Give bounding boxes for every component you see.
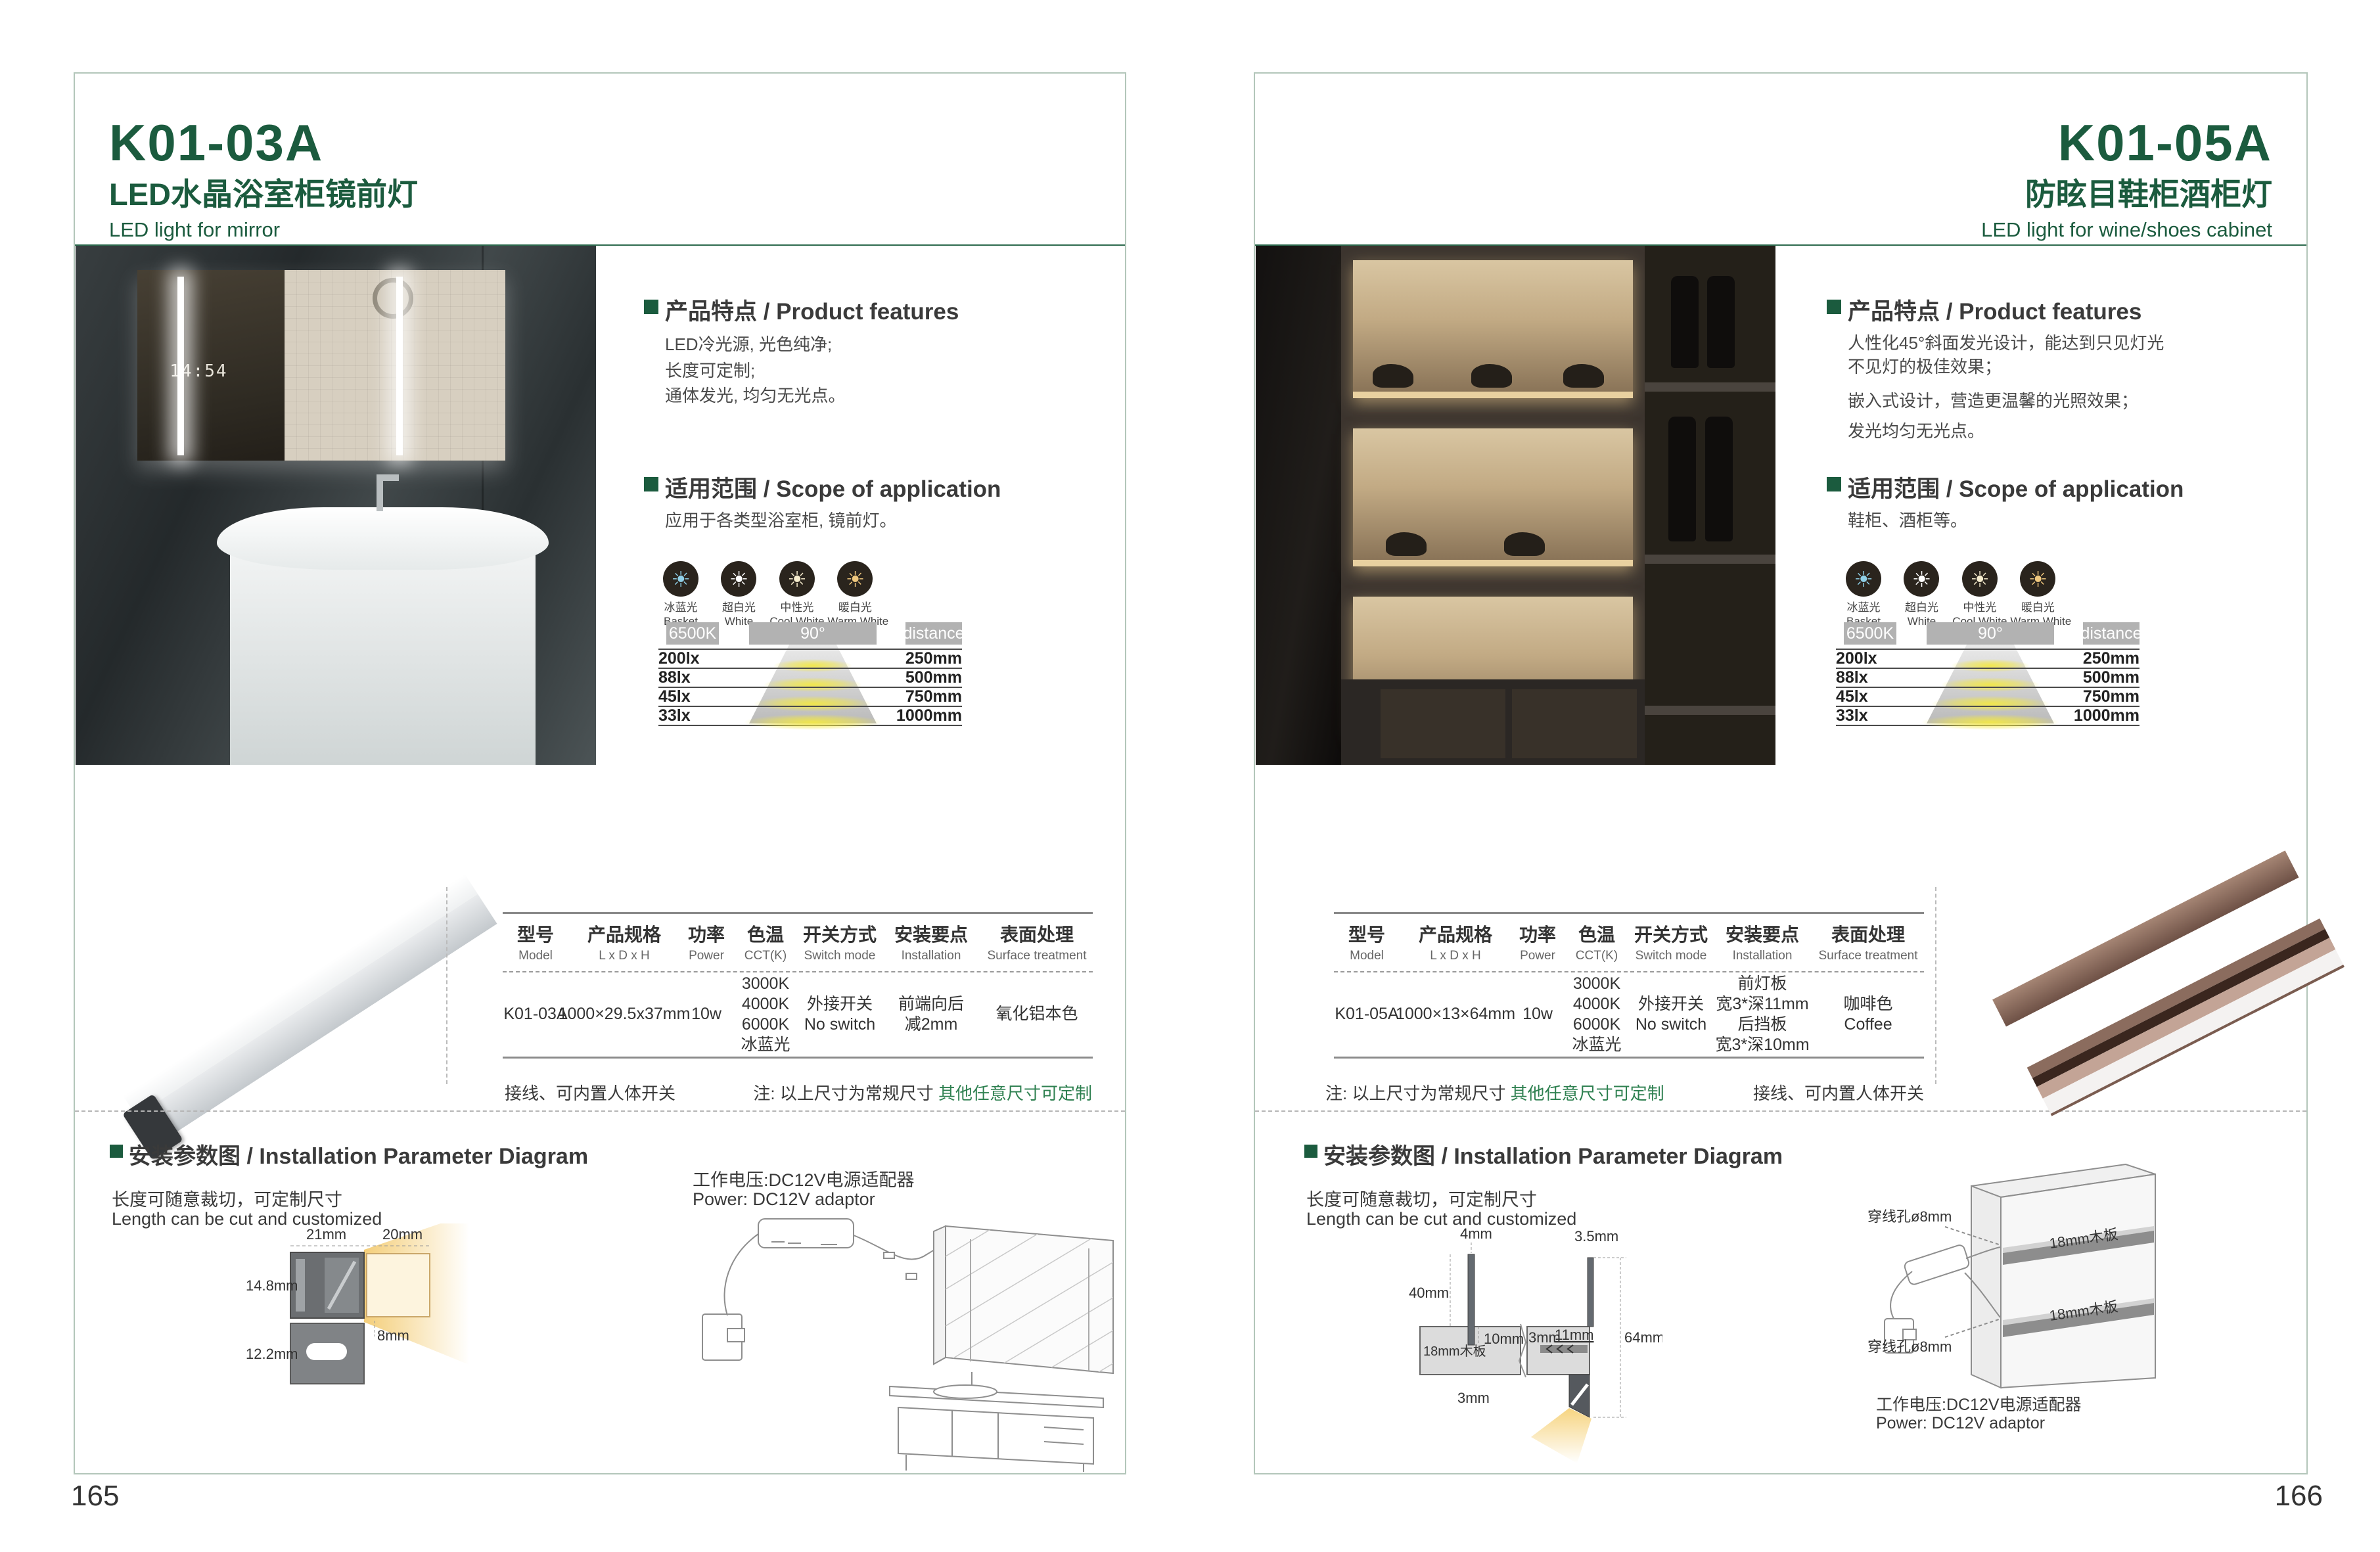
product-photo-bathroom: 14:54 bbox=[76, 246, 596, 765]
dim-10mm: 10mm bbox=[1484, 1331, 1524, 1347]
connector bbox=[906, 1273, 917, 1279]
photometric-row: 200lx250mm bbox=[658, 649, 962, 668]
cell-surface: 咖啡色Coffee bbox=[1812, 972, 1924, 1057]
product-photo-shoe-cabinet bbox=[1256, 246, 1775, 765]
feature-line: 发光均匀无光点。 bbox=[1848, 418, 1984, 442]
front-panel bbox=[1468, 1254, 1475, 1345]
board-label: 18mm木板 bbox=[1423, 1344, 1486, 1359]
led-mirror: 14:54 bbox=[137, 270, 505, 461]
dim-4mm: 4mm bbox=[1460, 1225, 1492, 1242]
faucet bbox=[377, 474, 383, 511]
col-header: 色温CCT(K) bbox=[1564, 914, 1630, 971]
vanity-body bbox=[898, 1407, 1093, 1464]
dim-20mm: 20mm bbox=[382, 1226, 423, 1243]
cabinet-front bbox=[2001, 1174, 2155, 1388]
cut-note-zh: 长度可随意裁切，可定制尺寸 bbox=[112, 1185, 342, 1211]
vanity-sink bbox=[934, 1385, 997, 1398]
section-dashed-divider bbox=[1255, 1110, 2306, 1112]
section-bullet bbox=[644, 477, 658, 491]
distance-value: 1000mm bbox=[2074, 706, 2140, 725]
sun-icon: ☀ bbox=[779, 561, 815, 597]
col-header: 产品规格L x D x H bbox=[568, 914, 680, 971]
mirror-dark-zone: 14:54 bbox=[137, 270, 285, 461]
distance-value: 250mm bbox=[905, 649, 962, 668]
beam-angle-chip: 90° bbox=[1927, 622, 2054, 645]
sun-icon: ☀ bbox=[721, 561, 756, 597]
size-note-black: 注: 以上尺寸为常规尺寸 bbox=[753, 1084, 938, 1103]
light-label-zh: 中性光 bbox=[1952, 601, 2007, 614]
light-option-coolwhite: ☀ 中性光Cool White bbox=[1952, 561, 2007, 629]
cross-section-diagram: 4mm 3.5mm 40mm 18mm木板 10mm 3mm 3mm 11mm … bbox=[1400, 1214, 1662, 1503]
beam-angle-chip: 90° bbox=[749, 622, 877, 645]
section-bullet bbox=[644, 300, 658, 314]
distance-chip: distance bbox=[905, 622, 962, 645]
cell-switch: 外接开关No switch bbox=[1630, 972, 1712, 1057]
cct-chip: 6500K bbox=[1844, 622, 1896, 645]
wire-hole-label: 穿线孔ø8mm bbox=[1867, 1338, 1952, 1355]
page-right-panel: K01-05A 防眩目鞋柜酒柜灯 LED light for wine/shoe… bbox=[1254, 72, 2308, 1474]
light-option-iceblue: ☀ 冰蓝光Basket bbox=[1836, 561, 1891, 629]
section-bullet bbox=[1827, 477, 1841, 491]
vanity-counter bbox=[890, 1386, 1103, 1407]
size-note-green: 其他任意尺寸可定制 bbox=[938, 1084, 1092, 1103]
distance-chip: distance bbox=[2083, 622, 2140, 645]
lux-value: 88lx bbox=[658, 668, 691, 687]
col-header: 产品规格L x D x H bbox=[1400, 914, 1511, 971]
boot-column bbox=[1645, 246, 1775, 765]
light-option-white: ☀ 超白光White bbox=[711, 561, 766, 629]
catalog-spread: { "accent_green": "#1b5b3e", "note_green… bbox=[0, 0, 2380, 1552]
scope-line: 应用于各类型浴室柜, 镜前灯。 bbox=[665, 507, 896, 532]
light-color-icons: ☀ 冰蓝光Basket ☀ 超白光White ☀ 中性光Cool White ☀… bbox=[653, 561, 882, 629]
col-header: 色温CCT(K) bbox=[733, 914, 798, 971]
cross-section-diagram: 21mm 20mm 14.8mm 12.2mm 8mm bbox=[246, 1223, 469, 1453]
lux-value: 33lx bbox=[1836, 706, 1868, 725]
distance-value: 750mm bbox=[2083, 687, 2140, 706]
dim-11mm: 11mm bbox=[1555, 1327, 1594, 1343]
light-option-iceblue: ☀ 冰蓝光Basket bbox=[653, 561, 708, 629]
distance-value: 250mm bbox=[2083, 649, 2140, 668]
light-glow bbox=[1531, 1408, 1591, 1463]
lux-value: 45lx bbox=[658, 687, 691, 706]
col-header: 型号Model bbox=[503, 914, 568, 971]
product-title-zh: 防眩目鞋柜酒柜灯 bbox=[2025, 179, 2272, 210]
shoe-box bbox=[1381, 689, 1505, 758]
lit-area bbox=[367, 1254, 430, 1317]
mirror-reflection bbox=[285, 270, 505, 461]
power-note-en: Power: DC12V adaptor bbox=[693, 1189, 875, 1210]
features-title: 产品特点 / Product features bbox=[665, 293, 959, 327]
shower-head-reflection bbox=[373, 278, 413, 319]
light-option-warmwhite: ☀ 暖白光Warm White bbox=[827, 561, 882, 629]
wash-basin bbox=[217, 507, 549, 570]
dim-64mm: 64mm bbox=[1624, 1329, 1662, 1346]
cell-power: 10w bbox=[680, 972, 733, 1057]
product-title-en: LED light for mirror bbox=[109, 219, 280, 240]
col-header: 功率Power bbox=[1511, 914, 1564, 971]
product-title-zh: LED水晶浴室柜镜前灯 bbox=[109, 179, 418, 210]
power-note-zh: 工作电压:DC12V电源适配器 bbox=[693, 1166, 915, 1191]
photometric-row: 45lx750mm bbox=[1836, 687, 2140, 706]
cut-note-zh: 长度可随意裁切，可定制尺寸 bbox=[1306, 1185, 1537, 1211]
coffee-profile-groove bbox=[2032, 929, 2329, 1087]
sun-icon: ☀ bbox=[1846, 561, 1881, 597]
dim-12.2mm: 12.2mm bbox=[246, 1346, 298, 1362]
power-adaptor bbox=[1904, 1244, 1970, 1286]
light-label-zh: 暖白光 bbox=[2010, 601, 2065, 614]
sun-icon: ☀ bbox=[1904, 561, 1939, 597]
dim-3.5mm: 3.5mm bbox=[1574, 1228, 1618, 1244]
product-image-white-profile bbox=[100, 888, 461, 1085]
led-strip-right bbox=[396, 277, 403, 455]
light-option-coolwhite: ☀ 中性光Cool White bbox=[769, 561, 825, 629]
light-option-white: ☀ 超白光White bbox=[1894, 561, 1949, 629]
photometric-diagram: 6500K 90° distance 200lx250mm 88lx500mm … bbox=[1836, 622, 2140, 727]
cabinet-door bbox=[1256, 246, 1341, 765]
cell-switch: 外接开关No switch bbox=[798, 972, 881, 1057]
feature-line: 通体发光, 均匀无光点。 bbox=[665, 382, 845, 407]
cell-power: 10w bbox=[1511, 972, 1564, 1057]
shoe-shelf bbox=[1353, 260, 1633, 398]
col-header: 表面处理Surface treatment bbox=[1812, 914, 1924, 971]
feature-line: LED冷光源, 光色纯净; bbox=[665, 331, 832, 355]
photometric-row: 33lx1000mm bbox=[1836, 706, 2140, 725]
lux-value: 200lx bbox=[658, 649, 700, 668]
photometric-row: 33lx1000mm bbox=[658, 706, 962, 725]
installation-scene bbox=[689, 1216, 1123, 1472]
section-dashed-divider bbox=[75, 1110, 1125, 1112]
scope-line: 鞋柜、酒柜等。 bbox=[1848, 507, 1967, 532]
lux-value: 45lx bbox=[1836, 687, 1868, 706]
shoe-shelf bbox=[1353, 428, 1633, 566]
light-label-zh: 超白光 bbox=[1894, 601, 1949, 614]
spec-table: 型号Model 产品规格L x D x H 功率Power 色温CCT(K) 开… bbox=[503, 912, 1093, 1059]
vanity-cabinet bbox=[230, 555, 536, 765]
photometric-rows: 200lx250mm 88lx500mm 45lx750mm 33lx1000m… bbox=[1836, 649, 2140, 726]
dim-3mm: 3mm bbox=[1457, 1390, 1490, 1406]
feature-line: 不见灯的极佳效果； bbox=[1848, 354, 2002, 378]
cell-surface: 氧化铝本色 bbox=[981, 972, 1093, 1057]
cell-install: 前灯板宽3*深11mm后挡板宽3*深10mm bbox=[1712, 972, 1812, 1057]
distance-value: 500mm bbox=[2083, 668, 2140, 687]
light-label-zh: 超白光 bbox=[711, 601, 766, 614]
spec-table: 型号Model 产品规格L x D x H 功率Power 色温CCT(K) 开… bbox=[1334, 912, 1924, 1059]
distance-value: 500mm bbox=[905, 668, 962, 687]
scope-title: 适用范围 / Scope of application bbox=[665, 470, 1001, 504]
light-color-icons: ☀ 冰蓝光Basket ☀ 超白光White ☀ 中性光Cool White ☀… bbox=[1836, 561, 2065, 629]
section-divider bbox=[446, 887, 447, 1084]
cell-size: 1000×29.5x37mm bbox=[568, 972, 680, 1057]
product-image-coffee-profile bbox=[2011, 879, 2300, 1095]
col-header: 安装要点Installation bbox=[881, 914, 981, 971]
install-title: 安装参数图 / Installation Parameter Diagram bbox=[129, 1138, 588, 1170]
sun-icon: ☀ bbox=[2020, 561, 2055, 597]
page-number-right: 166 bbox=[2275, 1480, 2323, 1513]
profile-front-face bbox=[136, 894, 497, 1146]
product-title-en: LED light for wine/shoes cabinet bbox=[1981, 219, 2272, 240]
section-bullet bbox=[1304, 1145, 1317, 1158]
led-strip-left bbox=[177, 277, 184, 455]
page-number-left: 165 bbox=[71, 1480, 119, 1513]
power-note-en: Power: DC12V adaptor bbox=[1876, 1414, 2045, 1433]
photometric-rows: 200lx250mm 88lx500mm 45lx750mm 33lx1000m… bbox=[658, 649, 962, 726]
cell-install: 前端向后减2mm bbox=[881, 972, 981, 1057]
connector bbox=[884, 1252, 894, 1258]
cell-cct: 3000K4000K6000K冰蓝光 bbox=[733, 972, 798, 1057]
cct-chip: 6500K bbox=[666, 622, 719, 645]
feature-line: 嵌入式设计，营造更温馨的光照效果； bbox=[1848, 388, 2138, 412]
power-adaptor bbox=[758, 1219, 854, 1248]
photometric-row: 88lx500mm bbox=[658, 668, 962, 687]
cell-cct: 3000K4000K6000K冰蓝光 bbox=[1564, 972, 1630, 1057]
light-option-warmwhite: ☀ 暖白光Warm White bbox=[2010, 561, 2065, 629]
photometric-diagram: 6500K 90° distance 200lx250mm 88lx500mm … bbox=[658, 622, 962, 727]
dim-21mm: 21mm bbox=[306, 1226, 346, 1243]
col-header: 开关方式Switch mode bbox=[798, 914, 881, 971]
dim-8mm: 8mm bbox=[377, 1327, 409, 1344]
features-title: 产品特点 / Product features bbox=[1848, 293, 2141, 327]
wire-hole-label: 穿线孔ø8mm bbox=[1867, 1208, 1952, 1225]
dim-40mm: 40mm bbox=[1409, 1285, 1449, 1301]
col-header: 表面处理Surface treatment bbox=[981, 914, 1093, 971]
shoe-box bbox=[1512, 689, 1637, 758]
size-note: 注: 以上尺寸为常规尺寸 其他任意尺寸可定制 bbox=[753, 1080, 1092, 1105]
power-note-zh: 工作电压:DC12V电源适配器 bbox=[1876, 1392, 2082, 1415]
cabinet-scene: 穿线孔ø8mm 穿线孔ø8mm 18mm木板 18mm木板 bbox=[1866, 1161, 2234, 1391]
section-bullet bbox=[110, 1145, 123, 1158]
clip-slot bbox=[306, 1343, 347, 1360]
page-title: K01-03A bbox=[109, 117, 323, 168]
light-label-zh: 暖白光 bbox=[827, 601, 882, 614]
sun-icon: ☀ bbox=[837, 561, 873, 597]
back-panel bbox=[1588, 1258, 1593, 1327]
wiring-note: 接线、可内置人体开关 bbox=[505, 1080, 675, 1105]
wiring-note: 接线、可内置人体开关 bbox=[1334, 1080, 1924, 1105]
lux-value: 200lx bbox=[1836, 649, 1877, 668]
light-label-zh: 中性光 bbox=[769, 601, 825, 614]
lux-value: 88lx bbox=[1836, 668, 1868, 687]
cell-model: K01-05A bbox=[1334, 972, 1400, 1057]
col-header: 安装要点Installation bbox=[1712, 914, 1812, 971]
light-label-zh: 冰蓝光 bbox=[653, 601, 708, 614]
cabinet-base bbox=[1341, 679, 1645, 765]
lux-value: 33lx bbox=[658, 706, 691, 725]
plug bbox=[727, 1329, 744, 1342]
install-title: 安装参数图 / Installation Parameter Diagram bbox=[1323, 1138, 1783, 1170]
feature-line: 人性化45°斜面发光设计，能达到只见灯光 bbox=[1848, 330, 2164, 354]
section-bullet bbox=[1827, 300, 1841, 314]
sun-icon: ☀ bbox=[1962, 561, 1998, 597]
page-left-panel: K01-03A LED水晶浴室柜镜前灯 LED light for mirror… bbox=[74, 72, 1126, 1474]
cell-size: 1000×13×64mm bbox=[1400, 972, 1511, 1057]
section-divider bbox=[1935, 887, 1936, 1084]
col-header: 功率Power bbox=[680, 914, 733, 971]
light-label-zh: 冰蓝光 bbox=[1836, 601, 1891, 614]
scope-title: 适用范围 / Scope of application bbox=[1848, 470, 2184, 504]
distance-value: 1000mm bbox=[896, 706, 962, 725]
dim-14.8mm: 14.8mm bbox=[246, 1277, 298, 1294]
distance-value: 750mm bbox=[905, 687, 962, 706]
col-header: 开关方式Switch mode bbox=[1630, 914, 1712, 971]
photometric-row: 45lx750mm bbox=[658, 687, 962, 706]
profile-top-face bbox=[124, 874, 478, 1116]
sun-icon: ☀ bbox=[663, 561, 698, 597]
page-title: K01-05A bbox=[2058, 117, 2272, 168]
cabinet-side bbox=[934, 1226, 946, 1364]
feature-line: 长度可定制; bbox=[665, 357, 755, 382]
col-header: 型号Model bbox=[1334, 914, 1400, 971]
power-cord bbox=[724, 1234, 758, 1315]
photometric-row: 200lx250mm bbox=[1836, 649, 2140, 668]
photometric-row: 88lx500mm bbox=[1836, 668, 2140, 687]
cabinet-side bbox=[1971, 1186, 2001, 1388]
